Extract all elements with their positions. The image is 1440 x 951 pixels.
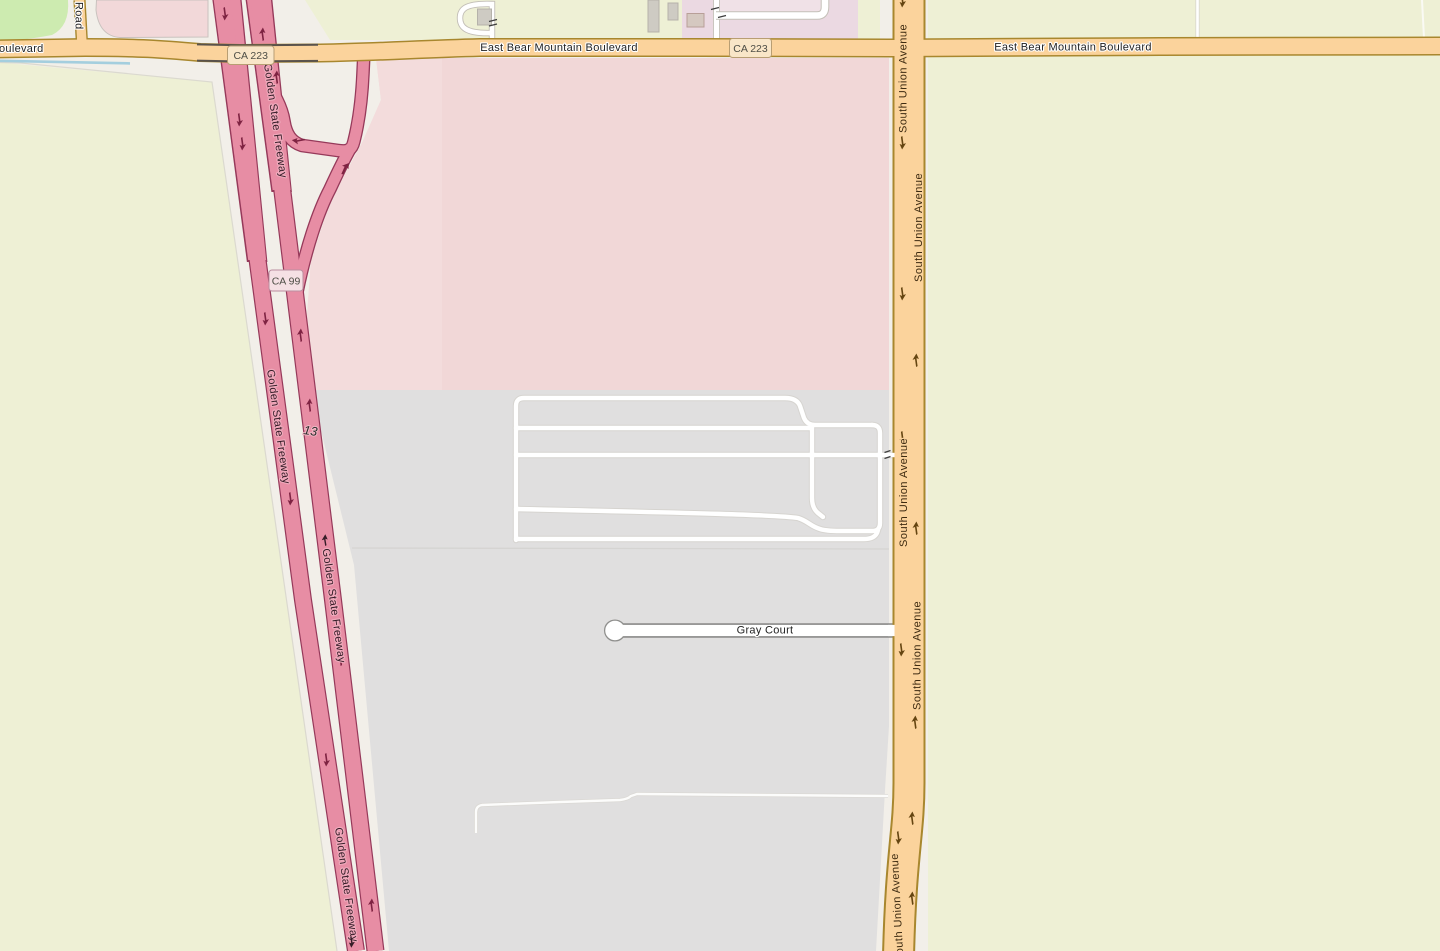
svg-text:East Bear Mountain Boulevard: East Bear Mountain Boulevard [480,42,638,54]
svg-text:South Union Avenue: South Union Avenue [898,24,910,133]
svg-text:oulevard: oulevard [0,43,44,55]
svg-text:Gray Court: Gray Court [737,625,794,637]
svg-text:Road: Road [73,2,85,30]
svg-text:South Union Avenue: South Union Avenue [898,438,910,547]
svg-text:South Union Avenue: South Union Avenue [912,601,924,710]
svg-text:CA 223: CA 223 [733,43,768,55]
svg-text:CA 223: CA 223 [233,50,268,62]
svg-text:CA 99: CA 99 [272,276,301,288]
svg-text:13: 13 [303,423,319,439]
svg-text:East Bear Mountain Boulevard: East Bear Mountain Boulevard [994,42,1152,54]
svg-text:South Union Avenue: South Union Avenue [913,173,925,282]
